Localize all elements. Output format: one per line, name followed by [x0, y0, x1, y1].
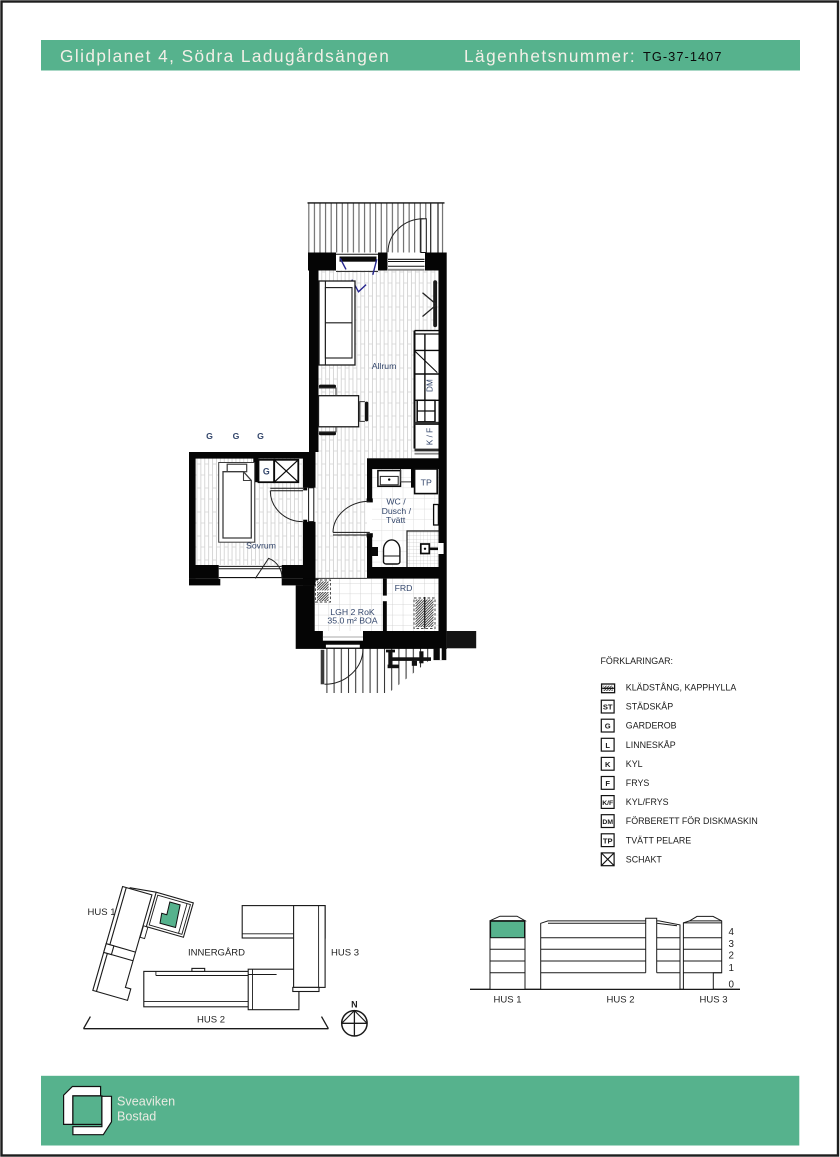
svg-text:Sveaviken: Sveaviken — [117, 1095, 175, 1109]
svg-text:Tvätt: Tvätt — [386, 515, 406, 525]
svg-text:TP: TP — [603, 836, 613, 845]
svg-text:GARDEROB: GARDEROB — [626, 721, 677, 731]
svg-text:TP: TP — [421, 478, 432, 488]
svg-text:G: G — [257, 431, 264, 441]
svg-text:SCHAKT: SCHAKT — [626, 854, 663, 864]
svg-text:K/F: K/F — [602, 800, 613, 807]
svg-text:Sovrum: Sovrum — [246, 541, 276, 551]
svg-text:STÄDSKÅP: STÄDSKÅP — [626, 702, 673, 712]
svg-text:HUS 3: HUS 3 — [331, 948, 359, 959]
svg-text:35.0 m² BOA: 35.0 m² BOA — [327, 615, 377, 625]
svg-text:4: 4 — [729, 927, 735, 938]
svg-text:L: L — [605, 741, 610, 750]
svg-text:WC /: WC / — [386, 496, 406, 506]
svg-text:INNERGÅRD: INNERGÅRD — [188, 948, 245, 959]
svg-text:Bostad: Bostad — [117, 1110, 156, 1124]
svg-text:K / F: K / F — [425, 428, 434, 445]
svg-text:FRYS: FRYS — [626, 778, 650, 788]
svg-text:G: G — [206, 431, 213, 441]
svg-text:Glidplanet 4, Södra Ladugårdsä: Glidplanet 4, Södra Ladugårdsängen — [60, 46, 390, 66]
svg-text:Allrum: Allrum — [372, 361, 397, 371]
svg-text:TG-37-1407: TG-37-1407 — [643, 49, 723, 64]
svg-text:HUS 2: HUS 2 — [607, 995, 635, 1006]
svg-text:FÖRBERETT FÖR DISKMASKIN: FÖRBERETT FÖR DISKMASKIN — [626, 816, 758, 826]
svg-text:ST: ST — [603, 703, 613, 712]
svg-text:G: G — [263, 467, 270, 477]
svg-text:2: 2 — [729, 951, 734, 962]
svg-text:TVÄTT PELARE: TVÄTT PELARE — [626, 835, 692, 845]
svg-text:1: 1 — [729, 963, 734, 974]
svg-text:FRD: FRD — [395, 583, 413, 593]
svg-text:KYL/FRYS: KYL/FRYS — [626, 797, 669, 807]
svg-text:KYL: KYL — [626, 759, 643, 769]
svg-text:Lägenhetsnummer:: Lägenhetsnummer: — [464, 46, 636, 66]
svg-text:HUS 1: HUS 1 — [88, 907, 116, 918]
svg-text:3: 3 — [729, 939, 735, 950]
svg-text:HUS 1: HUS 1 — [494, 995, 522, 1006]
svg-text:F: F — [605, 779, 610, 788]
svg-text:G: G — [605, 722, 611, 731]
svg-text:HUS 3: HUS 3 — [700, 995, 728, 1006]
svg-text:0: 0 — [729, 979, 735, 990]
svg-text:DM: DM — [425, 379, 434, 392]
svg-text:DM: DM — [602, 819, 613, 826]
svg-text:G: G — [233, 431, 240, 441]
svg-text:KLÄDSTÅNG, KAPPHYLLA: KLÄDSTÅNG, KAPPHYLLA — [626, 683, 737, 693]
svg-text:K: K — [605, 760, 611, 769]
svg-text:LINNESKÅP: LINNESKÅP — [626, 740, 676, 750]
svg-text:N: N — [351, 1000, 358, 1010]
svg-text:FÖRKLARINGAR:: FÖRKLARINGAR: — [601, 656, 674, 666]
svg-text:HUS 2: HUS 2 — [197, 1015, 225, 1026]
